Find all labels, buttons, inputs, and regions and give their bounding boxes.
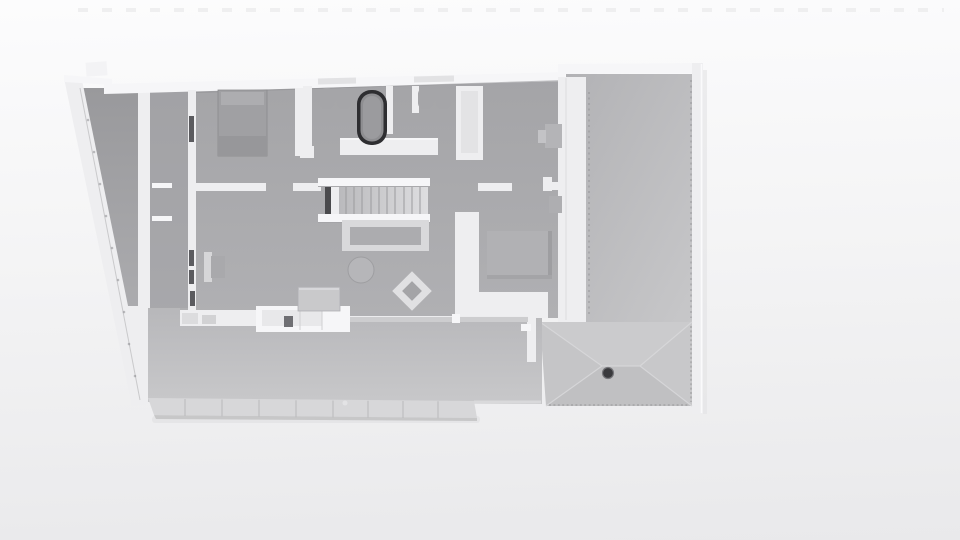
chimney (603, 368, 614, 379)
bed-right-room (487, 231, 552, 279)
corridor-floor-tint (150, 86, 188, 308)
sideboard (298, 287, 340, 311)
corridor-shelf-1 (152, 183, 172, 188)
desk-chair (211, 256, 225, 278)
hip-roof (540, 322, 692, 406)
divider-handle (521, 324, 531, 331)
wall-sink (320, 88, 334, 109)
wall-sink (337, 88, 351, 109)
door-slit (190, 291, 195, 306)
appliance-box-2 (202, 315, 216, 324)
wall-bedroom-bath (295, 88, 303, 156)
door-slit (189, 270, 194, 284)
desk2-chair (538, 130, 546, 143)
double-bed (218, 90, 267, 156)
render-viewport[interactable] (0, 0, 960, 540)
door-mullion (452, 314, 460, 323)
stair-post (331, 186, 339, 216)
cooktop (284, 316, 293, 327)
floor-plan-render (0, 0, 960, 540)
wall-hall-a (196, 183, 266, 191)
pillows (221, 92, 264, 105)
side-table (549, 196, 562, 213)
appliance-box-1 (182, 313, 198, 324)
wall-hall-b (293, 183, 321, 191)
wall-tub-right (386, 86, 393, 134)
bathtub (357, 90, 387, 145)
wall-right-room-horiz (455, 292, 548, 318)
stair-treads (337, 186, 428, 216)
bed2-edge-right (548, 231, 552, 279)
deck-knob (343, 401, 348, 406)
corridor-shelf-2 (152, 216, 172, 221)
bed2-edge-bottom (487, 275, 552, 279)
garage-shadow (703, 70, 707, 414)
sofa-seat (350, 227, 421, 245)
inner-left-wall (138, 86, 150, 308)
sofa (342, 220, 429, 251)
wall-sink (436, 88, 451, 109)
bath-counter-wall (340, 138, 438, 155)
tub-water (363, 96, 381, 139)
window-notch-2 (414, 76, 454, 83)
wall-bath2-stub (412, 86, 419, 113)
left-wing (64, 61, 150, 406)
wall-sink (418, 88, 433, 109)
wall-right-band (558, 77, 586, 322)
door-slit (189, 250, 194, 266)
closet-inner (461, 91, 478, 153)
garage-top-wall (558, 63, 702, 74)
wall-right-room-vert (455, 212, 479, 296)
deck-fascia (148, 398, 477, 418)
wall-pilaster (300, 146, 314, 158)
staircase (318, 178, 430, 223)
door-slit (189, 116, 194, 142)
entry-canopy-tab (86, 61, 108, 76)
wall-stub-d (543, 177, 552, 191)
study-desk (204, 252, 225, 282)
bed-foot (218, 136, 267, 156)
stair-rail-top (318, 178, 430, 186)
round-coffee-table (348, 257, 374, 283)
wall-hall-stub (478, 183, 512, 191)
window-notch-1 (318, 78, 356, 85)
